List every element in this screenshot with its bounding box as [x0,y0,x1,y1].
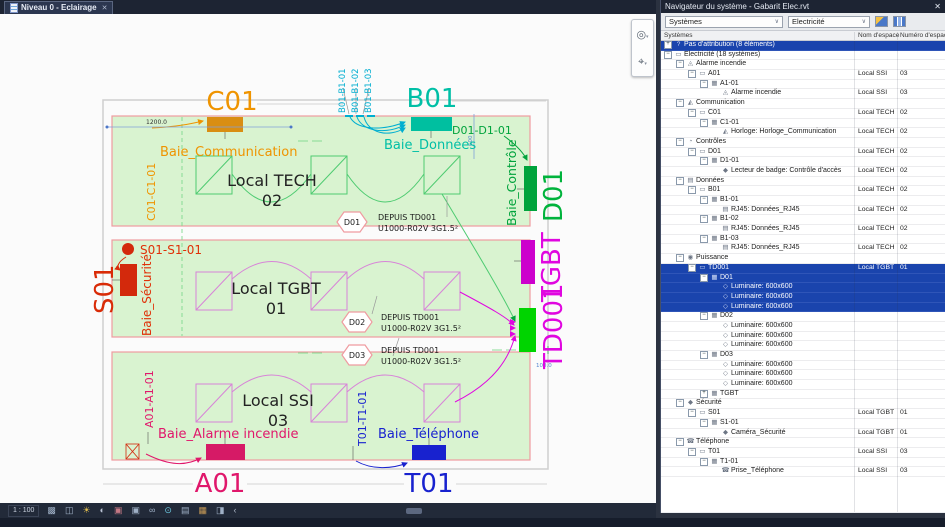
view-tab-bar: Niveau 0 - Eclairage ✕ [0,0,656,14]
svg-text:D01: D01 [344,218,360,227]
space-name-cell: Local TECH [858,244,895,253]
svg-text:D03: D03 [349,351,365,360]
tree-row[interactable]: −▦A1-01 [661,80,945,90]
status-bar [0,518,945,527]
tree-item-label: Electricité (18 systèmes) [684,51,760,58]
panel-icon: ▦ [710,419,719,428]
panel-icon: ▦ [710,215,719,224]
space-name-cell: Local TECH [858,225,895,234]
tree-item-label: C1-01 [720,119,739,126]
tree-row[interactable]: ◭Horloge: Horloge_CommunicationLocal TEC… [661,128,945,138]
tree-item-label: Luminaire: 600x600 [731,283,793,290]
phone-icon: ☎ [686,438,695,447]
tree-row[interactable]: ☎Prise_TéléphoneLocal SSI03 [661,467,945,477]
tree-row[interactable]: ◇Luminaire: 600x600 [661,293,945,303]
tree-row[interactable]: −▭D01Local TECH02 [661,148,945,158]
tree-item-label: Alarme incendie [731,89,781,96]
tree-item-label: B1-01 [720,196,739,203]
tree-row[interactable]: −▦D02 [661,312,945,322]
tag-b01-b1-01[interactable]: B01-B1-01 [338,68,348,113]
svg-text:U1000-R02V 3G1.5²: U1000-R02V 3G1.5² [378,224,458,233]
tree-item-label: TD001 [708,264,729,271]
tree-row[interactable]: ◇Luminaire: 600x600 [661,361,945,371]
tag-t01-t1-01[interactable]: T01-T1-01 [356,391,369,447]
space-number-cell: 01 [900,429,908,438]
collapse-icon[interactable]: − [676,438,684,446]
collapse-icon[interactable]: − [676,254,684,262]
power-icon: ◉ [686,254,695,263]
tree-row[interactable]: −▦D01 [661,274,945,284]
fire-icon: ◬ [686,60,695,69]
tree-item-label: Luminaire: 600x600 [731,322,793,329]
tree-item-label: Horloge: Horloge_Communication [731,128,836,135]
tree-item-label: Luminaire: 600x600 [731,361,793,368]
collapse-icon[interactable]: − [700,215,708,223]
svg-text:Local TECH: Local TECH [227,171,317,190]
tree-row[interactable]: −▦B1-03 [661,235,945,245]
chevron-down-icon: ∨ [862,18,866,25]
svg-text:Local TGBT: Local TGBT [231,279,321,298]
collapse-icon[interactable]: − [688,409,696,417]
tag-d01-d1-01[interactable]: D01-D1-01 [452,124,512,137]
svg-text:01: 01 [266,299,286,318]
tree-item-label: Alarme incendie [696,60,746,67]
tree-row[interactable]: −▦S1-01 [661,419,945,429]
svg-text:1200.0: 1200.0 [146,119,167,126]
navigation-bar[interactable]: ◎▾ ⌖▾ [631,19,654,77]
tree-item-label: D03 [720,351,733,358]
svg-text:DEPUIS TD001: DEPUIS TD001 [378,213,436,222]
space-name-cell: Local TECH [858,128,895,137]
space-name-cell: Local TGBT [858,264,894,273]
lum-icon: ◇ [721,283,730,292]
space-number-cell: 02 [900,148,908,157]
collapse-icon[interactable]: − [700,119,708,127]
antenna-icon: ◭ [686,99,695,108]
svg-text:DEPUIS TD001: DEPUIS TD001 [381,313,439,322]
shadows-icon[interactable]: ◐ [100,503,105,518]
tree-row[interactable]: ◆Lecteur de badge: Contrôle d'accèsLocal… [661,167,945,177]
tag-d01-big[interactable]: D01 [539,169,569,222]
tree-item-label: Luminaire: 600x600 [731,370,793,377]
folder-icon: ▭ [698,109,707,118]
tree-row[interactable]: −▦D1-01 [661,157,945,167]
collapse-icon[interactable]: − [688,448,696,456]
tree-item-label: Luminaire: 600x600 [731,341,793,348]
fire-icon: ◬ [721,89,730,98]
panel-icon: ▦ [710,196,719,205]
tree-item-label: Données [696,177,724,184]
space-number-cell: 02 [900,186,908,195]
tree-row[interactable]: −▭S01Local TGBT01 [661,409,945,419]
floor-plan-icon [10,3,18,13]
collapse-icon[interactable]: − [700,235,708,243]
tag-baie-communication[interactable]: Baie_Communication [160,145,297,160]
collapse-icon[interactable]: − [664,51,672,59]
tree-item-label: D01 [708,148,721,155]
collapse-icon[interactable]: − [700,157,708,165]
tree-column-header: Systèmes Nom d'espace Numéro d'espace [661,30,945,41]
panel-icon: ▦ [710,157,719,166]
space-name-cell: Local TGBT [858,429,894,438]
collapse-icon[interactable]: − [676,99,684,107]
shield-icon: ◆ [721,167,730,176]
tree-row[interactable]: −▦D03 [661,351,945,361]
tree-item-label: S01 [708,409,720,416]
panel-toolbar: Systèmes∨ Electricité∨ [661,13,945,30]
tree-row[interactable]: −◉Puissance [661,254,945,264]
tree-row[interactable]: ◇Luminaire: 600x600 [661,283,945,293]
lum-icon: ◇ [721,332,730,341]
space-number-cell: 03 [900,89,908,98]
space-name-cell: Local TECH [858,186,895,195]
folder-icon: ▭ [698,264,707,273]
column-space-name[interactable]: Nom d'espace [858,32,899,39]
tree-item-label: A01 [708,70,720,77]
collapse-icon[interactable]: − [688,109,696,117]
tree-row[interactable]: −☎Téléphone [661,438,945,448]
view-tab-niveau0-eclairage[interactable]: Niveau 0 - Eclairage ✕ [4,1,113,14]
baie-controle-equipment[interactable] [524,166,537,211]
lum-icon: ◇ [721,380,730,389]
space-name-cell: Local SSI [858,448,887,457]
tree-row[interactable]: −◭Communication [661,99,945,109]
reveal-constraints-icon[interactable]: ◨ [216,503,225,518]
expand-icon[interactable]: + [664,41,672,49]
tree-item-label: Pas d'attribution (8 éléments) [684,41,775,48]
tree-row[interactable]: −▭TD001Local TGBT01 [661,264,945,274]
tag-b01-b1-02[interactable]: B01-B1-02 [351,68,361,113]
collapse-icon[interactable]: − [676,138,684,146]
question-icon: ? [674,41,683,50]
data-icon: ▤ [686,177,695,186]
space-number-cell: 02 [900,206,908,215]
collapse-icon[interactable]: − [688,70,696,78]
view-selector-dropdown[interactable]: Systèmes∨ [665,16,783,28]
view-control-bar: 1 : 100 ▩◫☀◐▣▣∞⊙▤▦◨‹ [0,503,656,518]
folder-icon: ▭ [674,51,683,60]
view-selector-value: Systèmes [669,17,702,26]
controls-icon: ◔ [686,138,695,147]
view-control-icons: ▩◫☀◐▣▣∞⊙▤▦◨‹ [47,503,236,518]
space-name-cell: Local TECH [858,167,895,176]
lum-icon: ◇ [721,361,730,370]
svg-text:DEPUIS TD001: DEPUIS TD001 [381,346,439,355]
tree-row[interactable]: −▭C01Local TECH02 [661,109,945,119]
baie-alarme-equipment[interactable] [206,444,245,460]
space-name-cell: Local SSI [858,467,887,476]
chevron-left-icon[interactable]: ‹ [234,503,237,518]
tag-a01[interactable]: A01 [195,469,246,499]
tree-item-label: RJ45: Données_RJ45 [731,206,800,213]
tree-row[interactable]: ◇Luminaire: 600x600 [661,322,945,332]
displaced-elements-icon[interactable]: ▦ [198,503,207,518]
system-browser-panel: Navigateur du système - Gabarit Elec.rvt… [660,0,945,513]
folder-icon: ▭ [698,186,707,195]
panel-icon: ▦ [710,390,719,399]
svg-text:U1000-R02V 3G1.5²: U1000-R02V 3G1.5² [381,324,461,333]
tag-td001[interactable]: TD001 [539,283,569,370]
tree-row[interactable]: −◬Alarme incendie [661,60,945,70]
floor-plan-drawing: 1200.0 600 100.0 D01 DEPUIS TD001 U1000-… [0,14,656,503]
panel-icon: ▦ [710,80,719,89]
collapse-icon[interactable]: − [676,177,684,185]
tree-item-label: B1-03 [720,235,739,242]
tree-item-label: RJ45: Données_RJ45 [731,244,800,251]
tree-row[interactable]: ◇Luminaire: 600x600 [661,380,945,390]
tree-item-label: Luminaire: 600x600 [731,332,793,339]
space-number-cell: 02 [900,109,908,118]
space-number-cell: 03 [900,448,908,457]
tree-item-label: Sécurité [696,399,722,406]
collapse-icon[interactable]: − [700,351,708,359]
tag-b01-b1-03[interactable]: B01-B1-03 [364,68,374,113]
folder-icon: ▭ [698,70,707,79]
collapse-icon[interactable]: − [700,312,708,320]
svg-text:D02: D02 [349,318,365,327]
collapse-icon[interactable]: − [700,419,708,427]
collapse-icon[interactable]: − [700,80,708,88]
panel-icon: ▦ [710,235,719,244]
tree-item-label: Puissance [696,254,728,261]
antenna-icon: ◭ [721,128,730,137]
room-local-ssi[interactable] [112,352,530,460]
phone-icon: ☎ [721,467,730,476]
collapse-icon[interactable]: − [700,196,708,204]
tree-item-label: Luminaire: 600x600 [731,293,793,300]
system-tree: +?Pas d'attribution (8 éléments)−▭Electr… [661,41,945,512]
tree-row[interactable]: ◬Alarme incendieLocal SSI03 [661,89,945,99]
camera-securite-symbol[interactable] [122,243,134,255]
tree-row[interactable]: ▤RJ45: Données_RJ45Local TECH02 [661,244,945,254]
collapse-icon[interactable]: − [688,186,696,194]
td001-panel-equipment[interactable] [519,308,536,352]
collapse-icon[interactable]: − [676,60,684,68]
panel-icon: ▦ [710,274,719,283]
tag-a01-a1-01[interactable]: A01-A1-01 [143,370,156,428]
space-name-cell: Local TECH [858,206,895,215]
tree-item-label: TGBT [720,390,739,397]
tree-row[interactable]: +?Pas d'attribution (8 éléments) [661,41,945,51]
tree-item-label: RJ45: Données_RJ45 [731,225,800,232]
space-name-cell: Local TECH [858,148,895,157]
discipline-value: Electricité [792,17,825,26]
tree-row[interactable]: −▦T1-01 [661,458,945,468]
zoom-icon[interactable]: ⌖▾ [638,56,647,69]
space-number-cell: 02 [900,167,908,176]
tree-row[interactable]: ◇Luminaire: 600x600 [661,332,945,342]
collapse-icon[interactable]: − [700,458,708,466]
reveal-hidden-icon[interactable]: ⊙ [164,503,172,518]
rj45-icon: ▤ [721,244,730,253]
lum-icon: ◇ [721,293,730,302]
tree-item-label: D02 [720,312,733,319]
panel-icon: ▦ [710,351,719,360]
folder-icon: ▭ [698,409,707,418]
glasses-hide-icon[interactable]: ∞ [149,503,155,518]
tree-row[interactable]: −▭B01Local TECH02 [661,186,945,196]
tgbt-equipment[interactable] [521,240,535,284]
tag-b01[interactable]: B01 [407,84,458,114]
tree-item-label: B01 [708,186,720,193]
lum-icon: ◇ [721,303,730,312]
baie-donnees-equipment[interactable] [411,117,452,131]
tag-c01[interactable]: C01 [206,87,257,117]
tree-row[interactable]: ◆Caméra_SécuritéLocal TGBT01 [661,429,945,439]
tree-row[interactable]: ▤RJ45: Données_RJ45Local TECH02 [661,225,945,235]
tree-row[interactable]: −◔Contrôles [661,138,945,148]
hide-analytical-icon[interactable]: ▤ [181,503,190,518]
tree-item-label: T1-01 [720,458,738,465]
column-systems[interactable]: Systèmes [664,32,693,39]
horizontal-scrollbar-thumb[interactable] [406,508,422,514]
tag-baie-controle[interactable]: Baie_Contrôle [504,139,519,226]
tree-row[interactable]: −▦C1-01 [661,119,945,129]
tree-item-label: A1-01 [720,80,739,87]
expand-icon[interactable]: + [700,390,708,398]
autofit-columns-icon[interactable] [875,16,888,27]
tag-c01-c1-01[interactable]: C01-C1-01 [145,163,158,221]
space-number-cell: 02 [900,244,908,253]
folder-icon: ▭ [698,148,707,157]
column-space-number[interactable]: Numéro d'espace [900,32,945,39]
tree-item-label: Prise_Téléphone [731,467,784,474]
discipline-dropdown[interactable]: Electricité∨ [788,16,870,28]
tree-item-label: Communication [696,99,745,106]
tree-item-label: C01 [708,109,721,116]
collapse-icon[interactable]: − [688,148,696,156]
lum-icon: ◇ [721,322,730,331]
tree-item-label: Luminaire: 600x600 [731,303,793,310]
tag-baie-donnees[interactable]: Baie_Données [384,138,476,153]
collapse-icon[interactable]: − [676,399,684,407]
tree-item-label: T01 [708,448,720,455]
svg-text:02: 02 [262,191,282,210]
rj45-icon: ▤ [721,225,730,234]
tree-item-label: Contrôles [696,138,726,145]
collapse-icon[interactable]: − [700,274,708,282]
panel-title: Navigateur du système - Gabarit Elec.rvt [665,2,809,11]
drawing-canvas[interactable]: 1200.0 600 100.0 D01 DEPUIS TD001 U1000-… [0,14,656,503]
column-settings-icon[interactable] [893,16,906,27]
baie-communication-equipment[interactable] [207,117,243,132]
space-number-cell: 01 [900,409,908,418]
panel-title-bar[interactable]: Navigateur du système - Gabarit Elec.rvt… [661,0,945,13]
space-name-cell: Local TGBT [858,409,894,418]
tree-item-label: Téléphone [696,438,729,445]
tree-item-label: B1-02 [720,215,739,222]
space-number-cell: 03 [900,467,908,476]
panel-icon: ▦ [710,312,719,321]
shield-icon: ◆ [686,399,695,408]
tree-row[interactable]: +▦TGBT [661,390,945,400]
sun-lighting-icon[interactable]: ☀ [82,503,90,518]
panel-icon: ▦ [710,119,719,128]
space-name-cell: Local TECH [858,109,895,118]
space-number-cell: 02 [900,128,908,137]
folder-icon: ▭ [698,448,707,457]
tree-row[interactable]: ▤RJ45: Données_RJ45Local TECH02 [661,206,945,216]
panel-close-icon[interactable]: ✕ [934,2,941,11]
tag-baie-telephone[interactable]: Baie_Téléphone [378,427,479,442]
svg-text:U1000-R02V 3G1.5²: U1000-R02V 3G1.5² [381,357,461,366]
tree-item-label: D01 [720,274,733,281]
crop-visible-icon[interactable]: ▣ [131,503,140,518]
collapse-icon[interactable]: − [688,264,696,272]
tree-item-label: D1-01 [720,157,739,164]
space-name-cell: Local SSI [858,70,887,79]
tag-s01[interactable]: S01 [90,264,120,314]
tree-item-label: S1-01 [720,419,739,426]
tree-item-label: Caméra_Sécurité [731,429,785,436]
revit-window: { "tab": { "title": "Niveau 0 - Eclairag… [0,0,945,527]
tree-row[interactable]: −▦B1-01 [661,196,945,206]
space-name-cell: Local SSI [858,89,887,98]
tree-row[interactable]: −◆Sécurité [661,399,945,409]
crop-off-icon[interactable]: ▣ [114,503,123,518]
scale-selector[interactable]: 1 : 100 [8,505,39,517]
view-tab-title: Niveau 0 - Eclairage [21,3,97,12]
steering-wheel-icon[interactable]: ◎▾ [636,28,648,41]
baie-securite-equipment[interactable] [120,264,137,296]
panel-icon: ▦ [710,458,719,467]
tree-row[interactable]: ◇Luminaire: 600x600 [661,341,945,351]
tree-row[interactable]: −▭Electricité (18 systèmes) [661,51,945,61]
tree-row[interactable]: ◇Luminaire: 600x600 [661,370,945,380]
tab-close-icon[interactable]: ✕ [102,4,108,12]
svg-text:Local SSI: Local SSI [242,391,314,410]
chevron-down-icon: ∨ [775,18,779,25]
tag-baie-securite[interactable]: Baie_Sécurité [140,254,154,336]
visual-style-icon[interactable]: ▩ [47,503,56,518]
space-number-cell: 02 [900,225,908,234]
tree-row[interactable]: −▤Données [661,177,945,187]
tree-row[interactable]: −▭A01Local SSI03 [661,70,945,80]
tag-baie-alarme[interactable]: Baie_Alarme incendie [158,427,298,442]
tree-row[interactable]: −▭T01Local SSI03 [661,448,945,458]
tree-item-label: Lecteur de badge: Contrôle d'accès [731,167,841,174]
rj45-icon: ▤ [721,206,730,215]
baie-telephone-equipment[interactable] [412,445,446,460]
tree-item-label: Luminaire: 600x600 [731,380,793,387]
lum-icon: ◇ [721,341,730,350]
box-3d-icon[interactable]: ◫ [65,503,74,518]
tree-row[interactable]: −▦B1-02 [661,215,945,225]
tree-row[interactable]: ◇Luminaire: 600x600 [661,303,945,313]
tag-t01[interactable]: T01 [404,469,454,499]
shield-icon: ◆ [721,429,730,438]
space-number-cell: 03 [900,70,908,79]
space-number-cell: 01 [900,264,908,273]
td001-feed-chevrons [510,319,516,337]
lum-icon: ◇ [721,370,730,379]
